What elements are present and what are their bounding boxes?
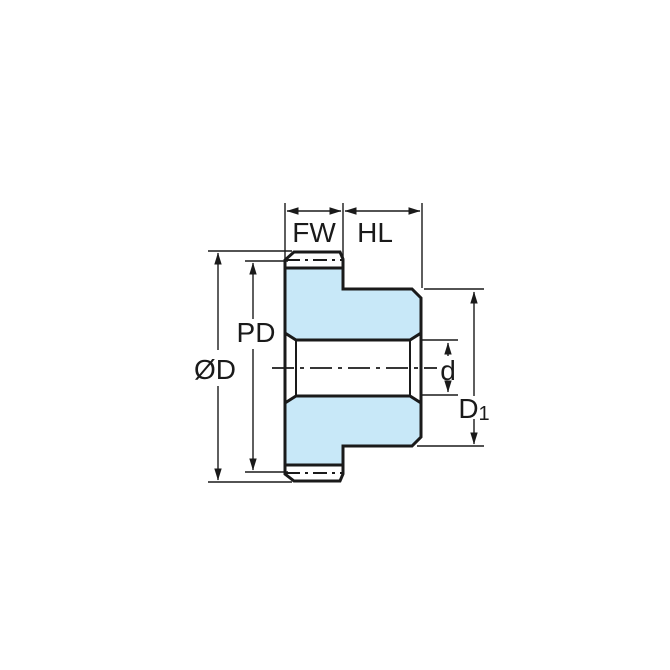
gear-technical-drawing: FW HL PD ØD d D1: [0, 0, 670, 670]
gear-upper-body: [285, 268, 421, 340]
gear-lower-body: [285, 396, 421, 465]
pitch-diameter-label: PD: [237, 317, 276, 348]
bore-diameter-label: d: [440, 355, 456, 386]
hub-length-label: HL: [357, 217, 393, 248]
face-width-label: FW: [292, 217, 336, 248]
hub-diameter-label-main: D: [458, 393, 478, 424]
hub-diameter-label-subscript: 1: [479, 403, 490, 425]
outside-diameter-label: ØD: [194, 354, 236, 385]
hub-diameter-label: D1: [458, 393, 489, 425]
